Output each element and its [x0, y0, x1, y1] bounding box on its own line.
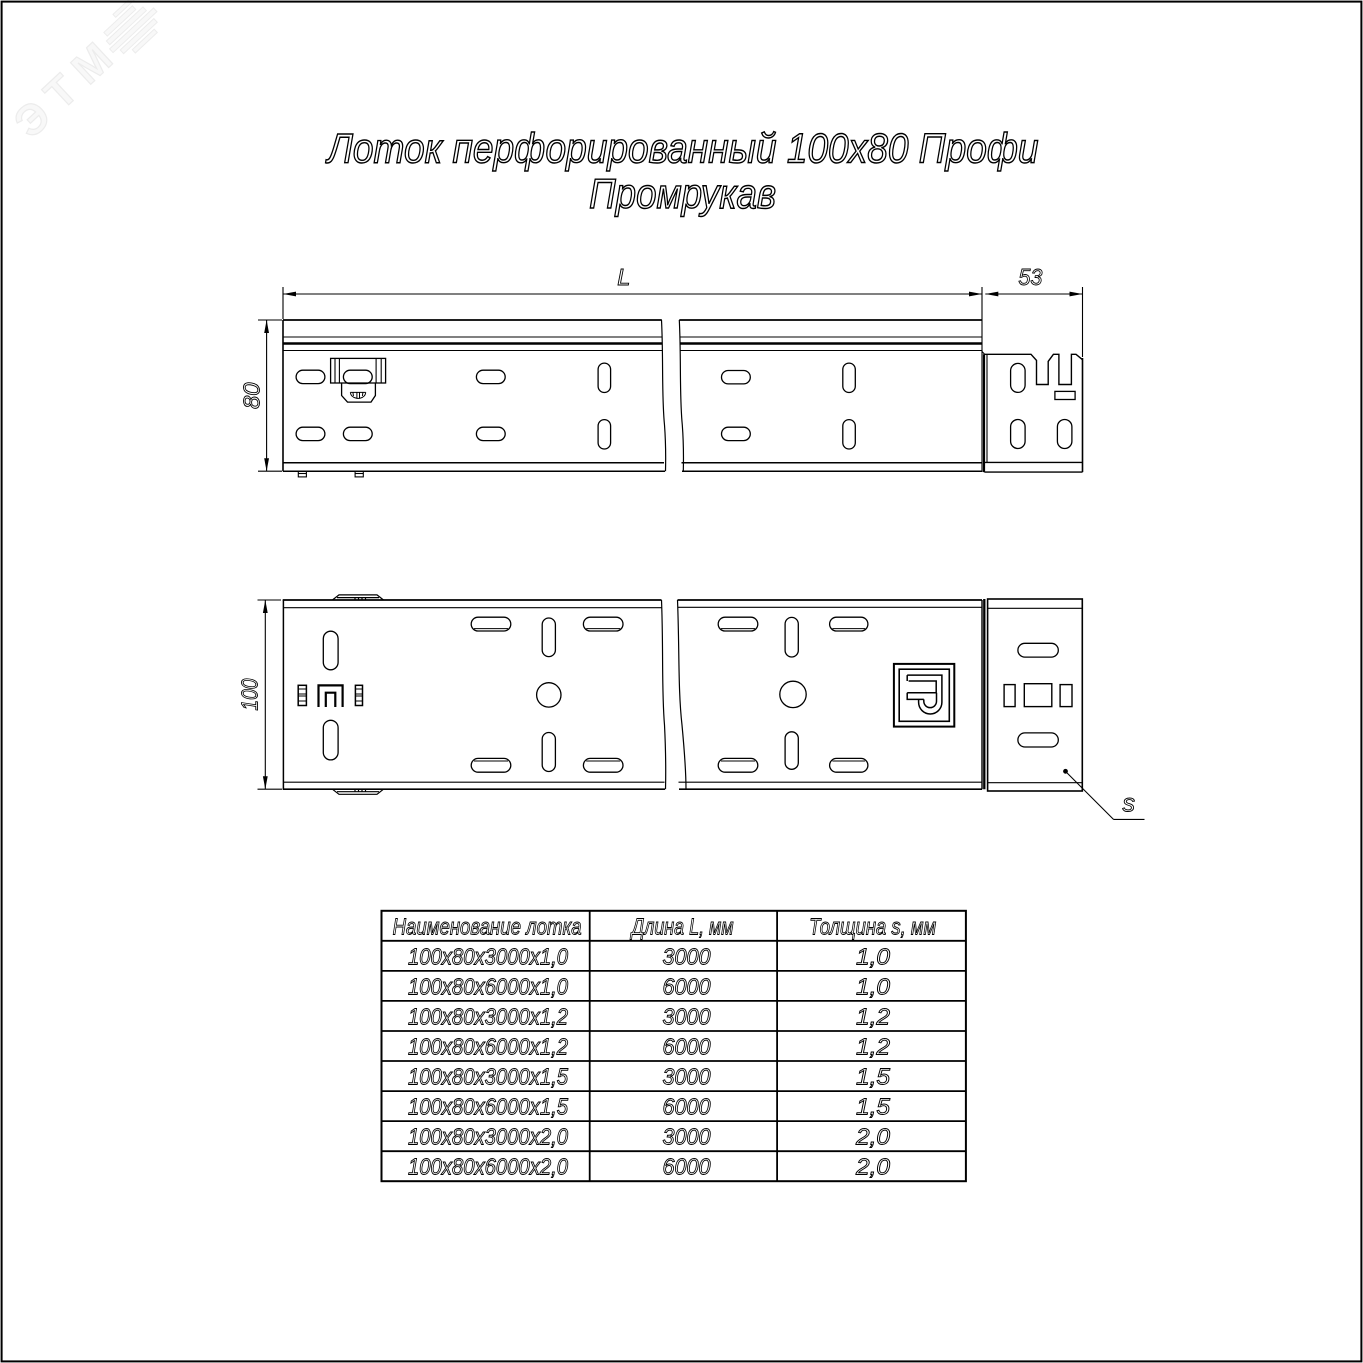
- svg-text:3000: 3000: [663, 1124, 711, 1150]
- svg-text:80: 80: [238, 382, 264, 409]
- svg-text:Толщина s, мм: Толщина s, мм: [809, 913, 936, 939]
- svg-text:100: 100: [236, 679, 262, 711]
- svg-text:6000: 6000: [663, 1094, 711, 1120]
- svg-text:3000: 3000: [663, 943, 711, 969]
- svg-text:53: 53: [1018, 264, 1042, 290]
- svg-text:Лоток перфорированный 100х80 П: Лоток перфорированный 100х80 Профи: [325, 124, 1039, 171]
- svg-text:L: L: [617, 264, 630, 290]
- svg-text:100х80х3000х1,0: 100х80х3000х1,0: [408, 943, 568, 969]
- svg-text:3000: 3000: [663, 1064, 711, 1090]
- svg-text:100х80х6000х1,5: 100х80х6000х1,5: [408, 1094, 569, 1120]
- svg-text:1,2: 1,2: [856, 1004, 890, 1030]
- svg-text:Наименование лотка: Наименование лотка: [393, 913, 582, 939]
- svg-text:1,0: 1,0: [856, 973, 890, 999]
- svg-text:100х80х3000х1,2: 100х80х3000х1,2: [408, 1004, 568, 1030]
- svg-text:s: s: [1123, 790, 1136, 818]
- svg-text:2,0: 2,0: [855, 1154, 890, 1180]
- svg-text:2,0: 2,0: [855, 1124, 890, 1150]
- svg-text:1,5: 1,5: [856, 1094, 891, 1120]
- svg-text:100х80х6000х2,0: 100х80х6000х2,0: [408, 1154, 568, 1180]
- svg-text:100х80х3000х2,0: 100х80х3000х2,0: [408, 1124, 568, 1150]
- svg-text:100х80х3000х1,5: 100х80х3000х1,5: [408, 1064, 569, 1090]
- svg-text:1,5: 1,5: [856, 1064, 891, 1090]
- svg-text:1,2: 1,2: [856, 1034, 890, 1060]
- svg-text:100х80х6000х1,0: 100х80х6000х1,0: [408, 973, 568, 999]
- svg-text:1,0: 1,0: [856, 943, 890, 969]
- svg-text:6000: 6000: [663, 973, 711, 999]
- svg-text:Длина L, мм: Длина L, мм: [629, 913, 733, 939]
- svg-text:6000: 6000: [663, 1034, 711, 1060]
- svg-text:100х80х6000х1,2: 100х80х6000х1,2: [408, 1034, 568, 1060]
- svg-text:Промрукав: Промрукав: [589, 170, 776, 217]
- svg-text:6000: 6000: [663, 1154, 711, 1180]
- svg-text:3000: 3000: [663, 1004, 711, 1030]
